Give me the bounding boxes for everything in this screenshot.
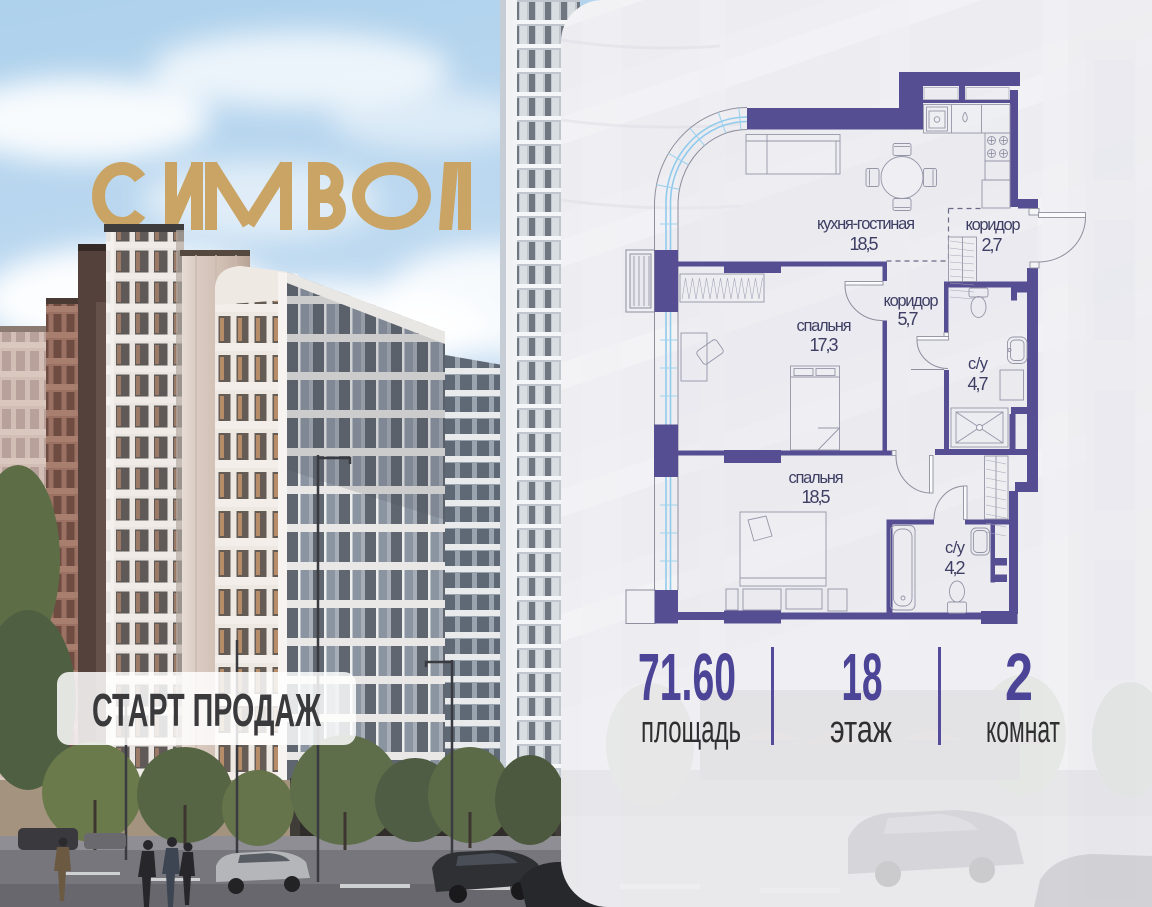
svg-text:18,5: 18,5	[850, 234, 879, 254]
svg-text:с/у: с/у	[945, 539, 966, 557]
svg-text:18: 18	[842, 640, 883, 715]
svg-text:71.60: 71.60	[638, 640, 736, 715]
svg-text:2: 2	[1005, 640, 1033, 715]
svg-text:коридор: коридор	[884, 292, 939, 310]
svg-text:этаж: этаж	[830, 709, 892, 751]
svg-text:2,7: 2,7	[982, 235, 1003, 255]
svg-text:18,5: 18,5	[802, 487, 831, 507]
svg-text:коридор: коридор	[966, 216, 1021, 234]
svg-text:комнат: комнат	[986, 709, 1060, 751]
svg-text:с/у: с/у	[968, 355, 989, 373]
svg-text:площадь: площадь	[641, 709, 741, 751]
svg-text:спальня: спальня	[789, 469, 844, 487]
svg-text:17,3: 17,3	[810, 335, 839, 355]
svg-text:СТАРТ ПРОДАЖ: СТАРТ ПРОДАЖ	[92, 684, 321, 736]
svg-text:спальня: спальня	[797, 317, 852, 335]
svg-text:4,7: 4,7	[968, 374, 989, 394]
svg-text:4,2: 4,2	[945, 558, 966, 578]
svg-text:5,7: 5,7	[898, 309, 919, 329]
svg-text:кухня-гостиная: кухня-гостиная	[817, 215, 915, 233]
